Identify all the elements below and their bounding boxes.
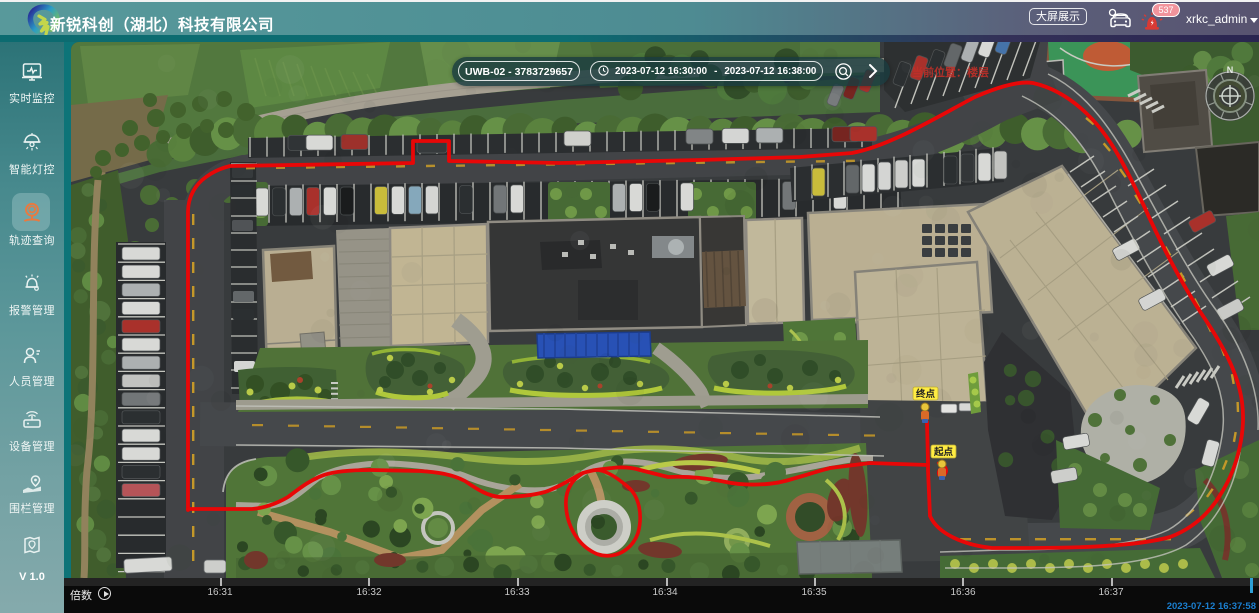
svg-text:起点: 起点 (933, 446, 954, 458)
svg-text:N: N (1227, 65, 1234, 75)
svg-text:当前位置：楼层: 当前位置：楼层 (912, 65, 989, 79)
svg-text:终点: 终点 (915, 388, 936, 400)
